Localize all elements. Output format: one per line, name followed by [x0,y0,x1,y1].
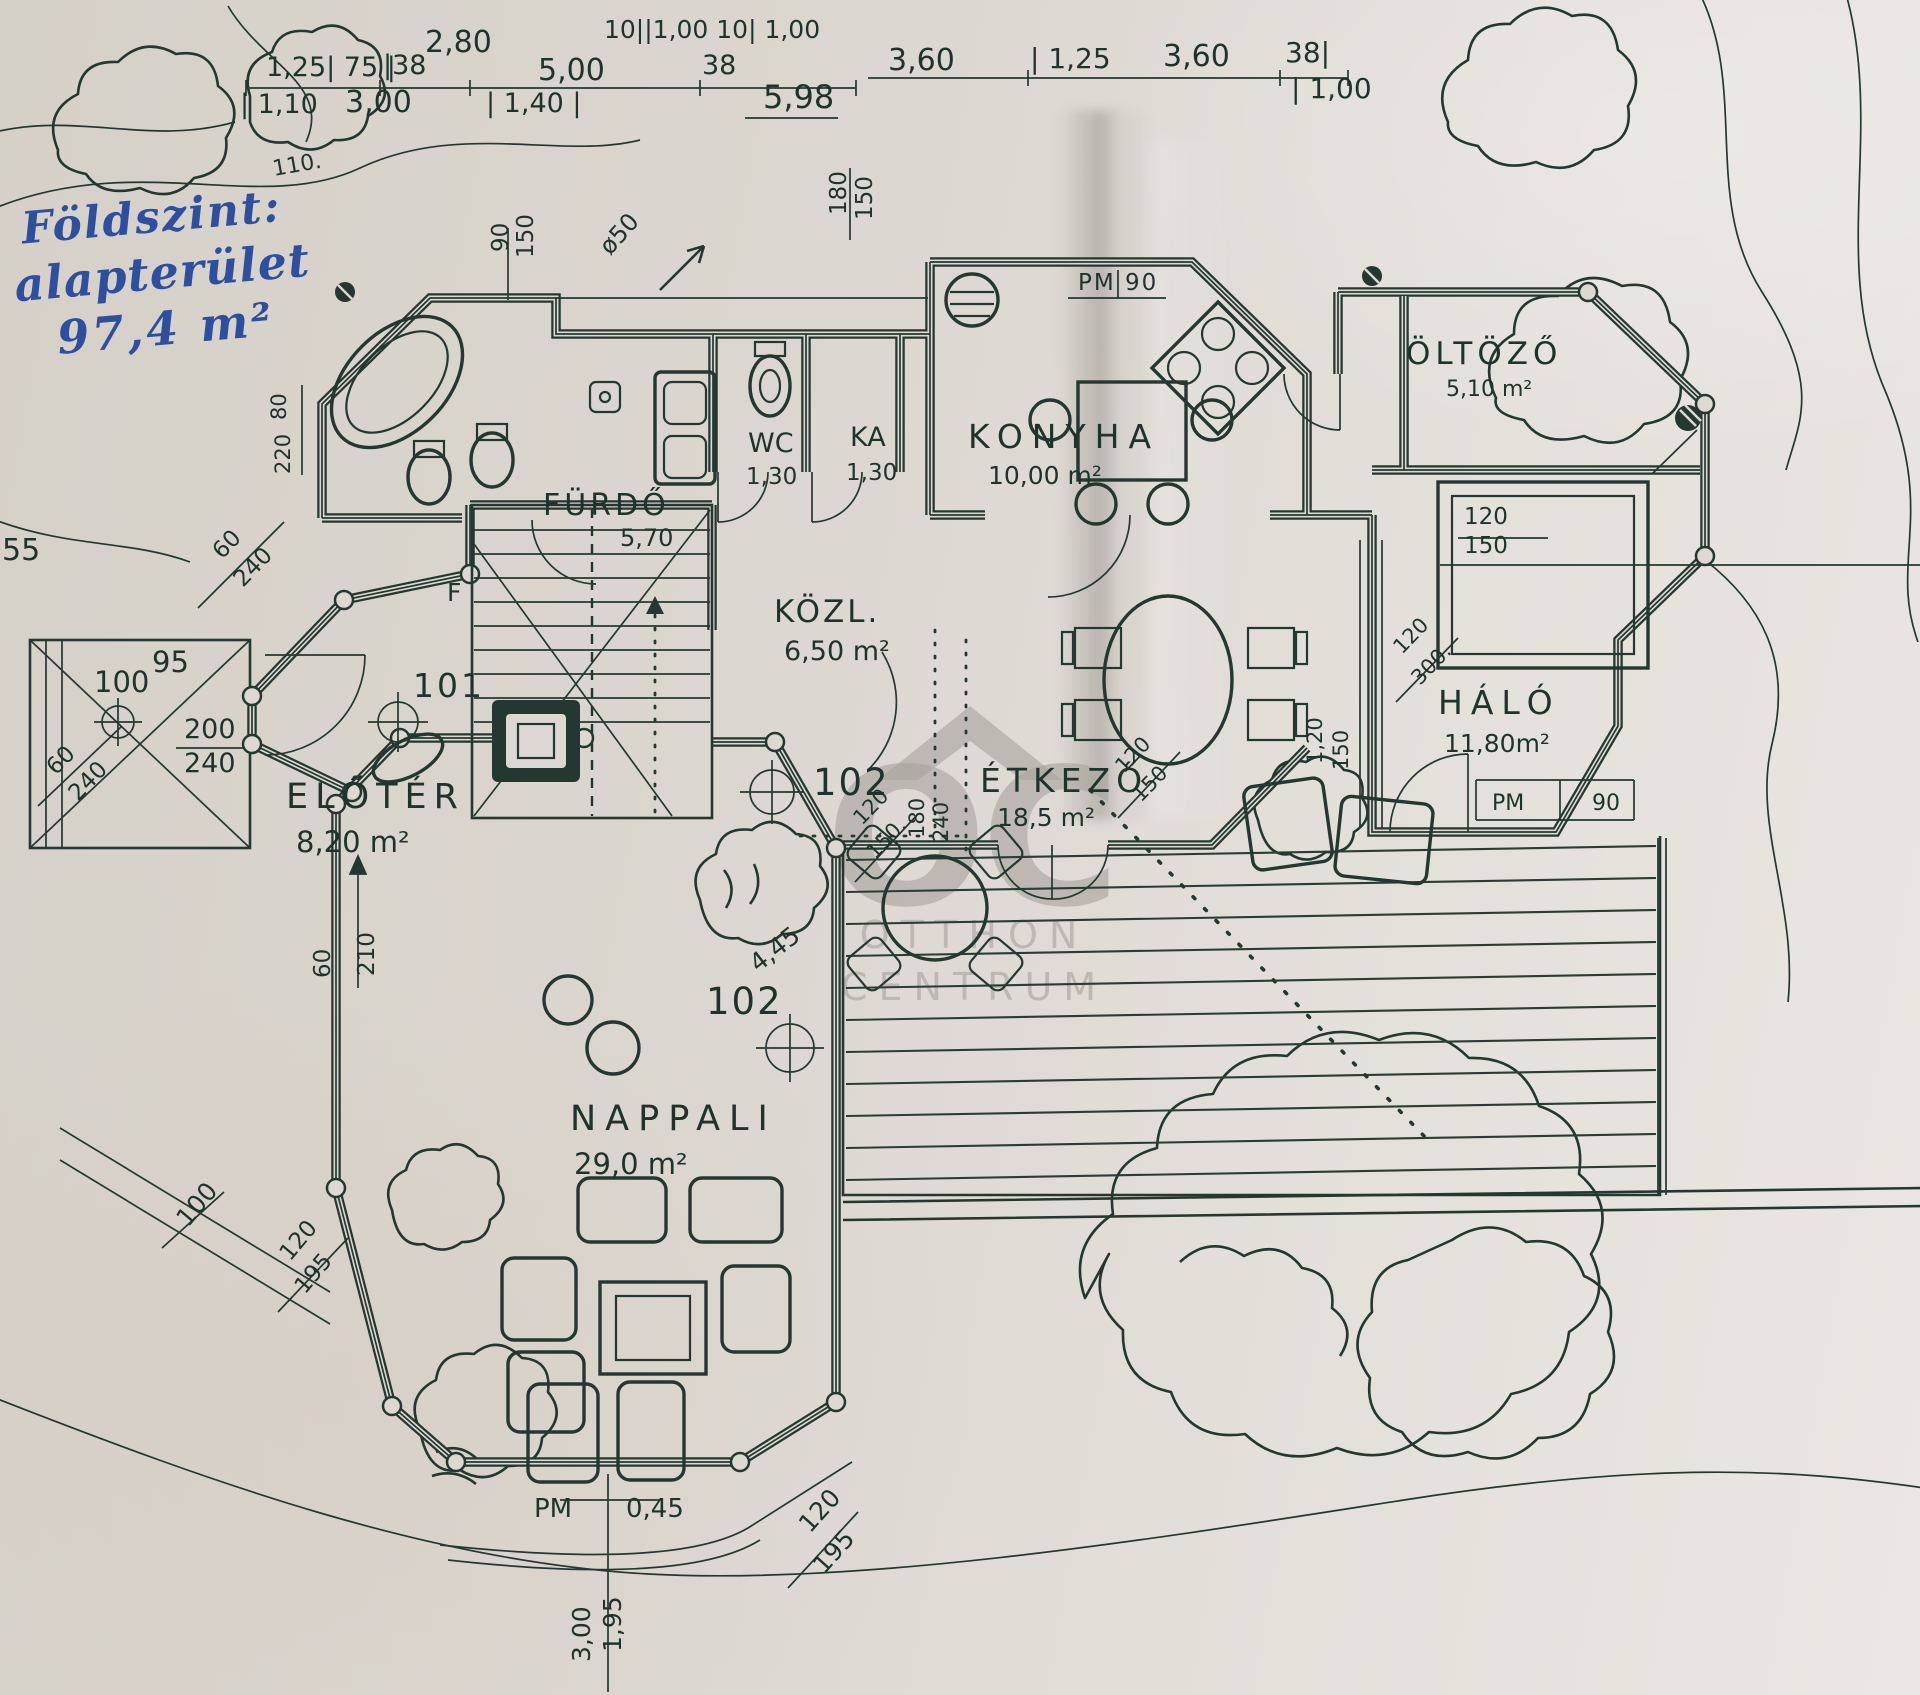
dim-445: 4,45 [744,921,806,978]
dim-annex-100: 100 [94,665,149,699]
dim-annex-200: 200 [184,714,236,745]
pm-konyha: PM 90 [1078,270,1158,296]
tree-top-right-a [1442,8,1636,168]
room-label-konyha: KONYHA [968,417,1160,456]
room-area-nappali: 29,0 m² [574,1147,688,1181]
room-area-wc: 1,30 [746,464,797,490]
scanned-floor-plan: OC OTTHON CENTRUM [0,0,1920,1695]
dining-chairs [1062,628,1307,740]
dim-v-150b: 150 [852,176,878,220]
dim-top-140: | 1,40 | [486,88,581,119]
dim-v-240b: 240 [929,802,953,842]
room-label-nappali: NAPPALI [570,1099,777,1139]
room-label-wc: WC [748,428,794,459]
dim-top-100: | 1,00 [1291,72,1372,105]
pm-nappali-value: 0,45 [626,1494,684,1524]
dim-top-360a: 3,60 [888,43,955,78]
dim-v-150: 150 [513,214,539,258]
dim-v-300: 3,00 [567,1606,596,1662]
dim-right-120: 120 [1464,504,1508,530]
handwritten-note: Földszint: alapterület 97,4 m² [19,178,317,368]
tree-right [1357,1227,1614,1458]
dim-top-110: | 1,10 [240,89,318,120]
dim-left-55: 55 [2,533,40,568]
marker-101: 101 [413,666,485,705]
dim-top-598: 5,98 [763,78,834,116]
contour-110: 110. [271,149,324,182]
tree-top-left-a [53,47,234,194]
bathtub [306,291,487,472]
dim-top-280: 2,80 [425,25,492,60]
room-area-eloter: 8,20 m² [296,825,410,859]
dim-left-220: 220 [271,434,295,474]
north-arrow [660,246,704,290]
sink [946,274,998,326]
bush-left [388,1144,503,1249]
room-label-furdo: FÜRDŐ [543,486,670,523]
marker-f: F [447,578,461,607]
dim-v-180: 180 [826,171,852,215]
dim-top-seq: 10||1,00 10| 1,00 [604,15,820,44]
room-label-oltozo: ÖLTÖZŐ [1406,335,1562,372]
dim-v-180b: 180 [905,798,929,838]
lounge-chair-2 [1334,795,1434,884]
dim-v-195: 1,95 [598,1596,627,1652]
room-label-halo: HÁLÓ [1438,682,1561,722]
dim-annex-240: 240 [184,748,236,779]
dim-left-80: 80 [267,393,291,420]
dim-diam-50: ø50 [594,208,645,260]
room-area-furdo: 5,70 [620,524,673,552]
dim-top-38a: |38 [383,50,426,81]
washer [590,382,620,412]
bush-deck [1254,757,1367,860]
room-area-kozl: 6,50 m² [784,636,890,667]
dim-top-38b: 38 [702,50,736,81]
bush-nappali [696,822,828,944]
dim-annex-95: 95 [152,645,189,679]
dim-top-360b: 3,60 [1163,39,1230,74]
toilet [408,450,450,504]
room-area-konyha: 10,00 m² [988,461,1102,490]
stair-arrow [646,596,664,614]
room-label-ka: KA [850,422,886,453]
tree-bottom-right [1080,1032,1603,1456]
fireplace [492,700,580,782]
dim-top-125-75: 1,25| 75 | [266,52,396,83]
dim-v-120: 1,20 [1303,717,1327,764]
dining-table [1104,596,1232,764]
room-label-kozl: KÖZL. [774,593,880,630]
dim-diag-60a: 60 [208,525,247,564]
dim-top-300: 3,00 [345,85,412,120]
room-area-oltozo: 5,10 m² [1446,377,1532,402]
room-label-eloter: ELŐTÉR [286,775,465,817]
hob [1152,302,1284,434]
pm-halo-value: 90 [1592,791,1620,816]
room-area-ka: 1,30 [846,460,897,486]
pm-nappali-label: PM [534,1494,572,1524]
dim-v-210: 210 [354,932,380,976]
room-area-etkezo: 18,5 m² [997,803,1095,832]
dim-top-500: 5,00 [538,53,605,88]
dim-top-125b: | 1,25 [1030,42,1111,75]
dim-v-150c: 150 [1329,730,1353,770]
dim-top-38c: 38| [1285,36,1330,69]
dim-right-150: 150 [1464,533,1508,559]
dim-v-60: 60 [310,949,336,978]
deck-edge [843,1188,1920,1220]
marker-102-nappali: 102 [706,980,783,1023]
wc-toilet [750,356,790,416]
dim-diag-100: 100 [170,1177,223,1232]
room-area-halo: 11,80m² [1444,729,1550,758]
bidet [471,433,513,487]
dim-diag-60b: 60 [42,741,81,780]
pm-halo-label: PM [1492,791,1524,816]
dim-v-90: 90 [488,223,514,252]
